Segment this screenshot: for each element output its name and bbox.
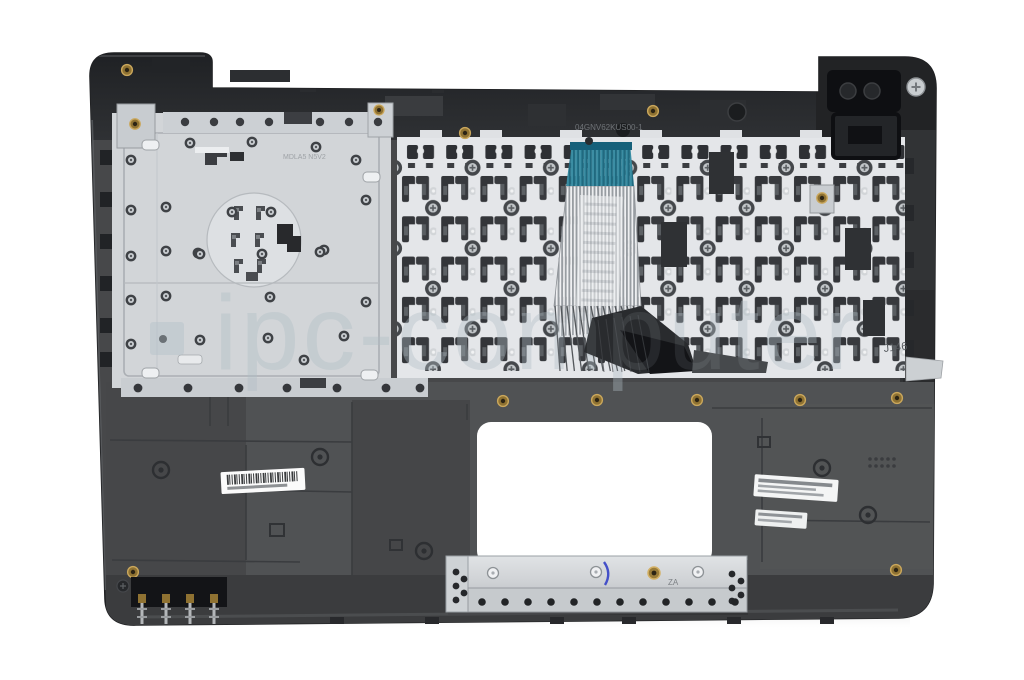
- svg-text:04GNV62KUS00-1: 04GNV62KUS00-1: [575, 123, 643, 132]
- svg-text:ipc-computer: ipc-computer: [214, 274, 863, 392]
- svg-text:ZA: ZA: [668, 578, 679, 587]
- svg-text:MDLA5 N5V2: MDLA5 N5V2: [283, 154, 326, 161]
- svg-text:J146: J146: [883, 341, 908, 355]
